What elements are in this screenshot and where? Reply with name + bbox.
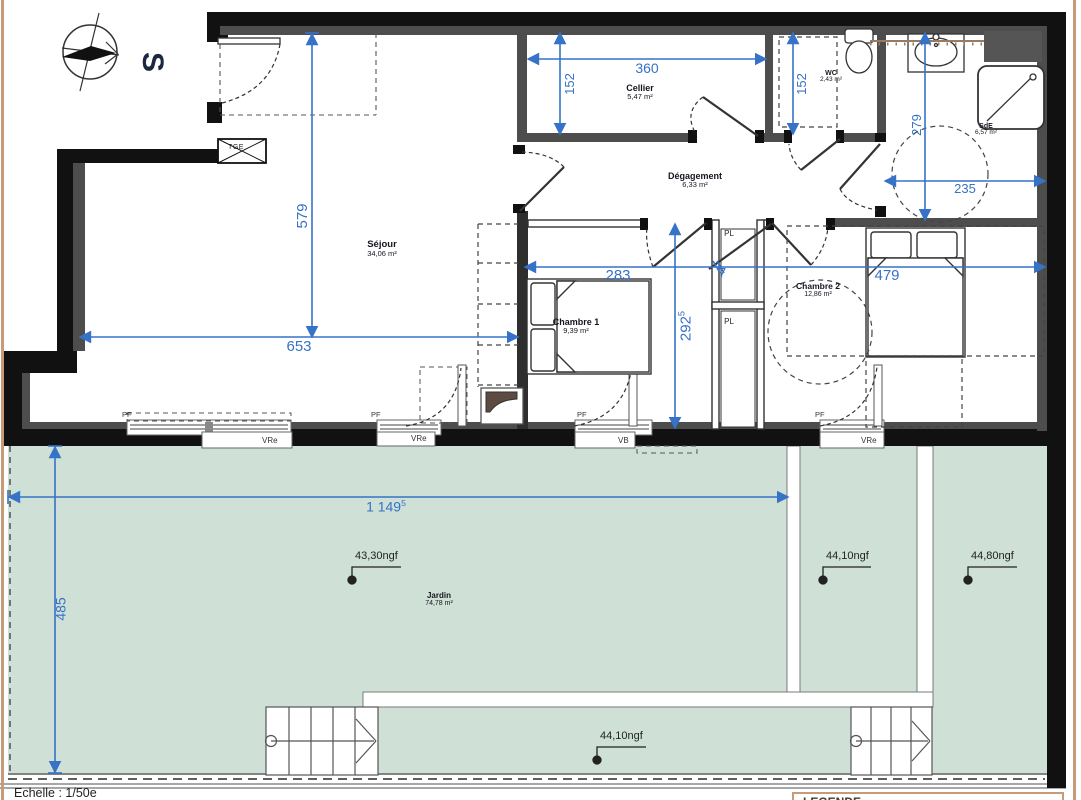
room-label-jardin: Jardin 74,78 m² [425, 592, 453, 608]
dimension-283: 283 [605, 268, 630, 284]
dimension-235: 235 [954, 182, 976, 196]
shutter-label: VRe [861, 437, 877, 445]
room-label-sejour: Séjour 34,06 m² [367, 240, 397, 258]
room-label-wc: WC 2,43 m² [820, 70, 842, 84]
elevation-value: 44,10ngf [600, 731, 643, 743]
room-label-degagement: Dégagement 6,33 m² [668, 172, 722, 189]
dimension-485: 485 [54, 597, 69, 620]
room-label-cellier: Cellier 5,47 m² [626, 84, 654, 101]
dimension-579: 579 [295, 203, 311, 228]
dimension-653: 653 [286, 339, 311, 355]
elevation-value: 44,10ngf [826, 551, 869, 563]
dimension-479: 479 [874, 268, 899, 284]
window-type-label: PF [815, 411, 825, 419]
compass-south-letter: S [135, 52, 169, 72]
dimension-152-wc: 152 [795, 73, 809, 95]
shutter-label: VRe [262, 437, 278, 445]
window-type-label: PF [577, 411, 587, 419]
shower-icon [978, 66, 1044, 129]
bed-chambre2 [866, 228, 965, 357]
dimension-292-5: 2925 [678, 311, 695, 341]
sheet-border-left [1, 0, 4, 800]
shutter-label: VRe [411, 435, 427, 443]
dimension-152-cellier: 152 [563, 73, 577, 95]
shutter-label: VB [618, 437, 629, 445]
dimension-279: 279 [910, 114, 924, 136]
dimension-7: 7 [718, 266, 726, 282]
room-label-chambre2: Chambre 2 12,86 m² [796, 282, 840, 298]
dimension-360: 360 [635, 61, 658, 76]
duct-shaft [481, 388, 523, 424]
closet-label-pl2: PL [724, 318, 734, 326]
toilet-icon [845, 29, 873, 73]
room-label-chambre1: Chambre 1 9,39 m² [553, 318, 600, 335]
window-type-label: PF [122, 411, 132, 419]
legend-box: LEGENDE [792, 792, 1064, 800]
window-type-label: PF [371, 411, 381, 419]
legend-title: LEGENDE [803, 795, 861, 800]
closet-label-pl1: PL [724, 230, 734, 238]
sink-icon [908, 34, 964, 72]
room-label-sde: SdE 6,57 m² [975, 123, 997, 137]
scale-label: Echelle : 1/50e [14, 786, 97, 800]
stairs-right [851, 707, 933, 775]
dimension-1149-5: 1 1495 [366, 499, 406, 514]
garden-right-wall [1047, 443, 1066, 788]
sheet-border-right [1073, 0, 1076, 800]
stairs-left [266, 707, 379, 775]
floor-plan-sheet: S Séjour 34,06 m² Cellier 5,47 m² Dégage… [0, 0, 1081, 800]
elevation-value: 43,30ngf [355, 551, 398, 563]
tge-label: TGE [228, 144, 244, 151]
elevation-value: 44,80ngf [971, 551, 1014, 563]
